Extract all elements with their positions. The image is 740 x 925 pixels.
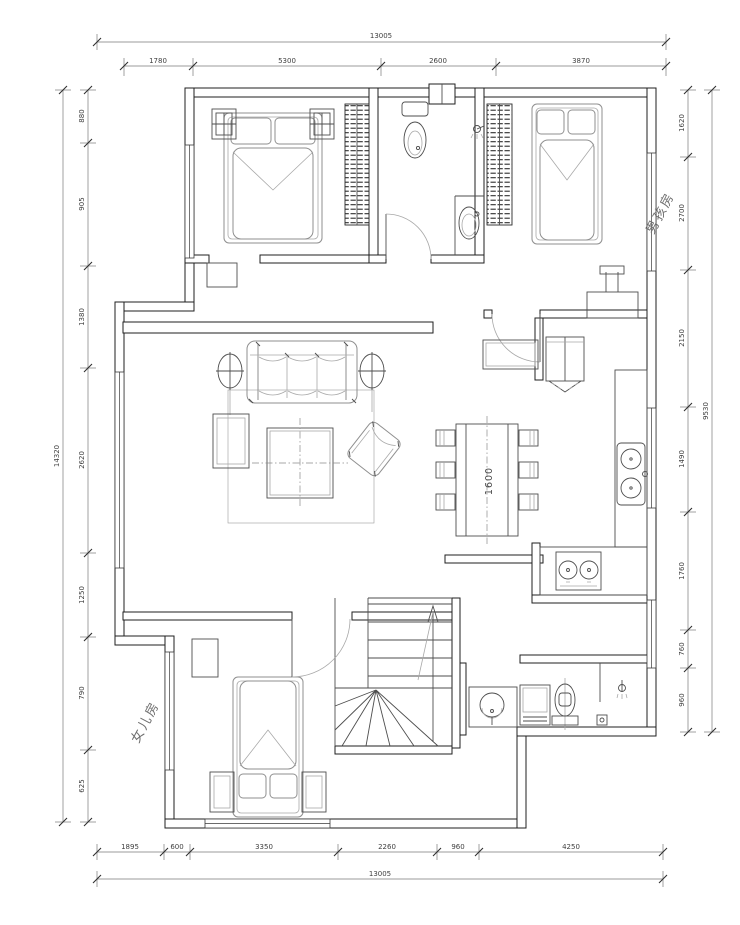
stair-direction-arrow [418,606,438,742]
dim-bottom-overall: 13005 [369,870,391,878]
tv-cabinet [213,414,249,468]
room-label-girls-room: 女儿房 [128,698,163,745]
bedroom-top-left [212,104,369,243]
plant-pot [358,352,386,412]
dim-right-chain-3: 1490 [678,450,686,468]
door-leaf [207,263,237,287]
kitchen-sink [617,443,648,505]
dim-left-chain-3: 2620 [78,451,86,469]
stove [556,552,601,590]
bathroom-sink [469,687,517,727]
washing-machine [520,685,550,725]
dim-left-chain-0: 880 [78,109,86,122]
dim-bottom-chain-3: 2260 [378,843,396,851]
bedroom-top-right [487,104,638,362]
window-bath-right [647,600,656,668]
nightstand [302,772,326,812]
window-bedroom1-left [185,145,194,258]
dim-left-chain-5: 790 [78,686,86,699]
toilet [402,102,428,158]
dining-table: 1600 [456,416,518,544]
bathroom-bottom [469,663,627,730]
dim-bottom-chain-1: 600 [170,843,183,851]
double-bed [224,113,322,243]
living-room [213,341,403,523]
dining-area: 1600 [436,340,538,544]
dim-right-chain-2: 2150 [678,329,686,347]
dining-chairs-right [519,430,538,510]
rug [228,390,374,523]
chair [600,266,624,292]
door-swing [292,619,350,677]
hallway [207,263,237,287]
window-kitchen-right [647,408,656,508]
sideboard [483,340,538,369]
floor-plan-page: 13005 1780 5300 2600 3870 1895 600 3350 … [0,0,740,925]
floor-drain [597,715,607,725]
flue-shaft [429,84,455,104]
wardrobe [487,104,512,225]
window-girls-room-left [165,652,174,770]
sofa [247,341,357,403]
dim-top-chain-0: 1780 [149,57,167,65]
dimension-left: 880 905 1380 2620 1250 790 625 14320 [53,86,96,826]
winder-treads [335,690,438,746]
dim-bottom-chain-2: 3350 [255,843,273,851]
dim-right-chain-4: 1760 [678,562,686,580]
window-living-left [115,372,124,568]
coffee-table [252,418,348,508]
cabinet [192,639,218,677]
dining-table-dimension: 1600 [484,467,495,495]
dim-left-chain-4: 1250 [78,586,86,604]
window-girls-room-bottom [205,819,330,828]
door-swing [386,214,431,259]
dim-bottom-chain-0: 1895 [121,843,139,851]
plant-pot [216,352,244,415]
floor-plan-canvas: 13005 1780 5300 2600 3870 1895 600 3350 … [0,0,740,925]
dim-right-chain-6: 960 [678,693,686,706]
door-swing [492,314,540,362]
dim-top-overall: 13005 [370,32,392,40]
dim-bottom-chain-4: 960 [451,843,464,851]
nightstand [210,772,234,812]
nightstand [212,109,236,139]
dim-left-chain-1: 905 [78,197,86,210]
bedroom-bottom-left [192,619,350,817]
dim-right-chain-1: 2700 [678,204,686,222]
double-bed [233,677,303,817]
toilet [552,678,578,730]
dim-right-overall: 9530 [702,402,710,420]
dimension-right: 1620 2700 2150 1490 1760 760 960 9530 [678,86,720,736]
dimension-bottom: 1895 600 3350 2260 960 4250 13005 [93,843,667,887]
dining-chairs-left [436,430,455,510]
dim-top-chain-1: 5300 [278,57,296,65]
dim-left-chain-2: 1380 [78,308,86,326]
dim-right-chain-5: 760 [678,642,686,655]
windows [115,145,656,828]
bathroom-top [386,102,484,259]
double-bed [532,104,602,244]
dim-bottom-chain-5: 4250 [562,843,580,851]
dim-top-chain-3: 3870 [572,57,590,65]
dim-left-chain-6: 625 [78,779,86,792]
shower-head-icon [617,680,627,699]
nightstand [310,109,334,139]
kitchen [540,337,648,595]
dim-top-chain-2: 2600 [429,57,447,65]
dim-right-chain-0: 1620 [678,114,686,132]
dimension-top: 13005 1780 5300 2600 3870 [93,32,670,76]
fridge [546,337,584,392]
dim-left-overall: 14320 [53,445,61,467]
wardrobe [345,104,369,225]
